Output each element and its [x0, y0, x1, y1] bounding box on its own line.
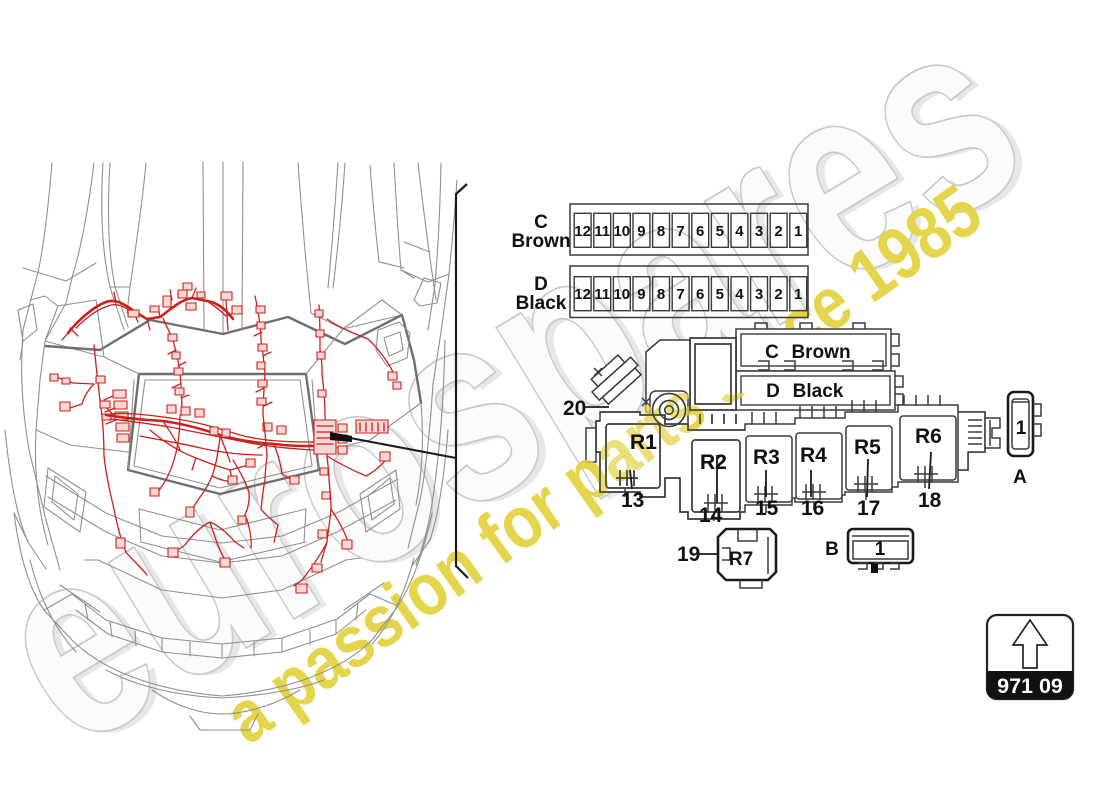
svg-text:R6: R6: [915, 425, 942, 448]
svg-text:C: C: [765, 342, 779, 363]
svg-text:1: 1: [875, 539, 886, 560]
svg-text:19: 19: [677, 543, 700, 566]
svg-text:R3: R3: [753, 446, 780, 469]
svg-text:20: 20: [563, 397, 586, 420]
svg-text:2: 2: [774, 286, 782, 303]
svg-text:D: D: [534, 274, 548, 295]
svg-text:2: 2: [774, 223, 782, 240]
svg-text:R1: R1: [630, 431, 657, 454]
svg-text:14: 14: [699, 504, 723, 527]
svg-text:1: 1: [794, 286, 802, 303]
svg-text:Brown: Brown: [791, 342, 850, 363]
svg-text:Brown: Brown: [511, 231, 570, 252]
svg-text:3: 3: [755, 223, 763, 240]
svg-text:D: D: [766, 381, 780, 402]
svg-text:971 09: 971 09: [997, 674, 1063, 698]
svg-text:A: A: [1013, 467, 1027, 488]
svg-text:1: 1: [794, 223, 802, 240]
svg-text:Black: Black: [516, 293, 567, 314]
svg-text:17: 17: [857, 497, 880, 520]
svg-text:Black: Black: [793, 381, 844, 402]
svg-text:16: 16: [801, 497, 824, 520]
svg-text:R7: R7: [729, 549, 753, 570]
svg-text:12: 12: [574, 286, 591, 303]
svg-text:10: 10: [613, 223, 630, 240]
svg-text:10: 10: [613, 286, 630, 303]
svg-text:8: 8: [657, 223, 665, 240]
svg-text:R2: R2: [700, 451, 727, 474]
svg-text:18: 18: [918, 489, 942, 512]
svg-text:4: 4: [735, 286, 744, 303]
svg-text:R4: R4: [800, 444, 827, 467]
svg-text:R5: R5: [854, 436, 881, 459]
svg-text:4: 4: [735, 223, 744, 240]
svg-text:15: 15: [755, 497, 779, 520]
svg-text:C: C: [534, 212, 548, 233]
svg-text:7: 7: [676, 223, 684, 240]
svg-text:7: 7: [676, 286, 684, 303]
svg-text:9: 9: [637, 286, 645, 303]
svg-text:11: 11: [594, 286, 610, 303]
svg-text:6: 6: [696, 223, 704, 240]
svg-text:11: 11: [594, 223, 610, 240]
svg-text:5: 5: [716, 286, 724, 303]
svg-text:8: 8: [657, 286, 665, 303]
svg-text:12: 12: [574, 223, 591, 240]
svg-text:1: 1: [1016, 418, 1027, 439]
svg-text:B: B: [825, 539, 839, 560]
svg-text:5: 5: [716, 223, 724, 240]
svg-text:9: 9: [637, 223, 645, 240]
svg-text:3: 3: [755, 286, 763, 303]
svg-text:13: 13: [621, 489, 644, 512]
svg-text:6: 6: [696, 286, 704, 303]
